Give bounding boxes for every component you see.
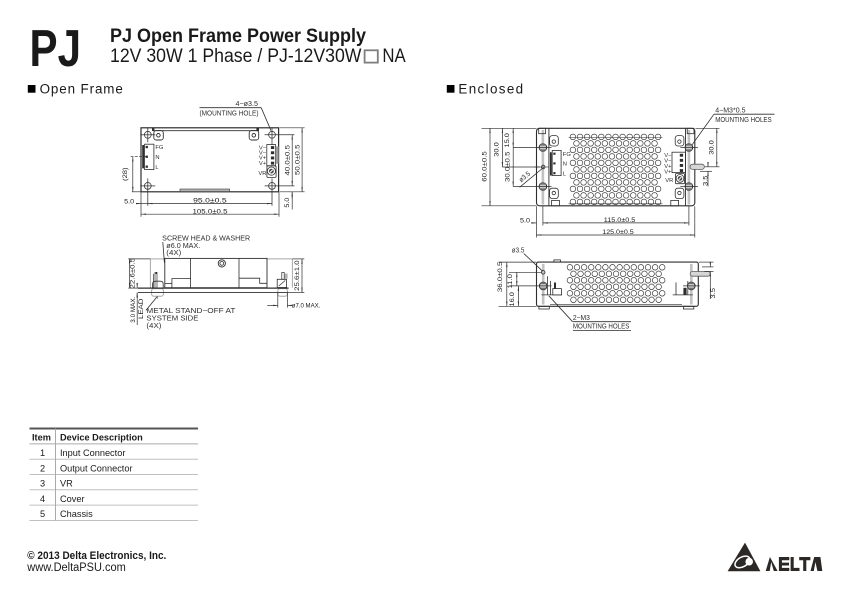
svg-text:3.0 MAX.: 3.0 MAX. <box>130 297 137 323</box>
svg-text:4−M3*0.5: 4−M3*0.5 <box>715 108 745 115</box>
svg-text:ø3.5: ø3.5 <box>512 248 525 255</box>
svg-text:5: 5 <box>40 509 45 519</box>
svg-text:Device Description: Device Description <box>60 433 143 443</box>
svg-text:ø6.0 MAX.: ø6.0 MAX. <box>166 243 200 250</box>
svg-text:Open Frame: Open Frame <box>40 82 123 97</box>
svg-text:4−ø3.5: 4−ø3.5 <box>236 101 259 108</box>
svg-text:2−M3: 2−M3 <box>573 315 590 322</box>
svg-text:60.0±0.5: 60.0±0.5 <box>481 151 488 182</box>
svg-text:115.0±0.5: 115.0±0.5 <box>604 217 636 224</box>
svg-text:30.0: 30.0 <box>494 142 501 157</box>
svg-text:1: 1 <box>40 448 45 458</box>
svg-text:3: 3 <box>40 479 45 489</box>
svg-text:105.0±0.5: 105.0±0.5 <box>193 208 228 215</box>
svg-text:11.0: 11.0 <box>507 274 514 289</box>
svg-text:N: N <box>563 162 567 168</box>
svg-text:ø7.0 MAX.: ø7.0 MAX. <box>292 303 321 310</box>
svg-text:12V 30W 1 Phase / PJ-12V30W: 12V 30W 1 Phase / PJ-12V30W <box>110 46 362 67</box>
svg-text:3.5: 3.5 <box>710 288 717 299</box>
svg-text:FG: FG <box>563 152 572 158</box>
svg-text:VR: VR <box>60 479 73 489</box>
svg-text:NA: NA <box>382 46 405 67</box>
svg-text:30.0: 30.0 <box>708 140 715 155</box>
svg-text:PJ Open Frame Power Supply: PJ Open Frame Power Supply <box>110 26 366 47</box>
svg-text:V+: V+ <box>259 161 267 167</box>
svg-text:V+: V+ <box>664 169 672 175</box>
svg-text:© 2013 Delta Electronics, Inc.: © 2013 Delta Electronics, Inc. <box>27 550 166 562</box>
svg-text:22.6±0.5: 22.6±0.5 <box>129 257 136 288</box>
svg-text:Cover: Cover <box>60 494 85 504</box>
svg-text:Item: Item <box>32 433 51 443</box>
svg-text:MOUNTING HOLES: MOUNTING HOLES <box>573 324 630 331</box>
svg-text:PJ: PJ <box>30 19 82 77</box>
svg-text:www.DeltaPSU.com: www.DeltaPSU.com <box>26 562 125 574</box>
svg-text:LEAD: LEAD <box>138 298 145 319</box>
svg-text:FG: FG <box>155 145 164 151</box>
svg-text:(28): (28) <box>122 167 129 181</box>
svg-text:125.0±0.5: 125.0±0.5 <box>602 229 634 236</box>
svg-text:50.0±0.5: 50.0±0.5 <box>295 144 302 175</box>
svg-text:MOUNTING HOLES: MOUNTING HOLES <box>715 117 772 124</box>
svg-text:N: N <box>155 155 159 161</box>
svg-text:15.0: 15.0 <box>504 133 511 148</box>
svg-text:Input Connector: Input Connector <box>60 448 125 458</box>
svg-text:VR: VR <box>258 171 266 177</box>
svg-text:(4X): (4X) <box>166 250 181 257</box>
svg-text:5.0: 5.0 <box>124 198 134 205</box>
svg-text:Enclosed: Enclosed <box>458 82 523 97</box>
svg-text:4: 4 <box>40 494 45 504</box>
svg-text:Chassis: Chassis <box>60 509 93 519</box>
svg-text:25.6±1.0: 25.6±1.0 <box>294 260 301 291</box>
svg-text:30.0±0.5: 30.0±0.5 <box>505 151 512 182</box>
svg-text:(4X): (4X) <box>146 323 161 330</box>
svg-text:3.5: 3.5 <box>702 175 709 186</box>
svg-text:Output Connector: Output Connector <box>60 463 133 473</box>
svg-text:2: 2 <box>40 463 45 473</box>
svg-text:95.0±0.5: 95.0±0.5 <box>193 198 227 205</box>
svg-text:VR: VR <box>665 178 673 184</box>
svg-text:METAL STAND−OFF AT: METAL STAND−OFF AT <box>146 308 236 315</box>
svg-text:5.0: 5.0 <box>520 217 530 224</box>
svg-text:40.0±0.5: 40.0±0.5 <box>285 145 292 176</box>
svg-text:(MOUNTING HOLE): (MOUNTING HOLE) <box>200 110 259 117</box>
svg-text:SYSTEM SIDE: SYSTEM SIDE <box>146 316 198 323</box>
svg-text:36.0±0.5: 36.0±0.5 <box>497 261 504 292</box>
svg-text:16.0: 16.0 <box>509 292 516 307</box>
svg-text:SCREW HEAD & WASHER: SCREW HEAD & WASHER <box>162 235 250 242</box>
svg-text:5.0: 5.0 <box>284 197 291 207</box>
